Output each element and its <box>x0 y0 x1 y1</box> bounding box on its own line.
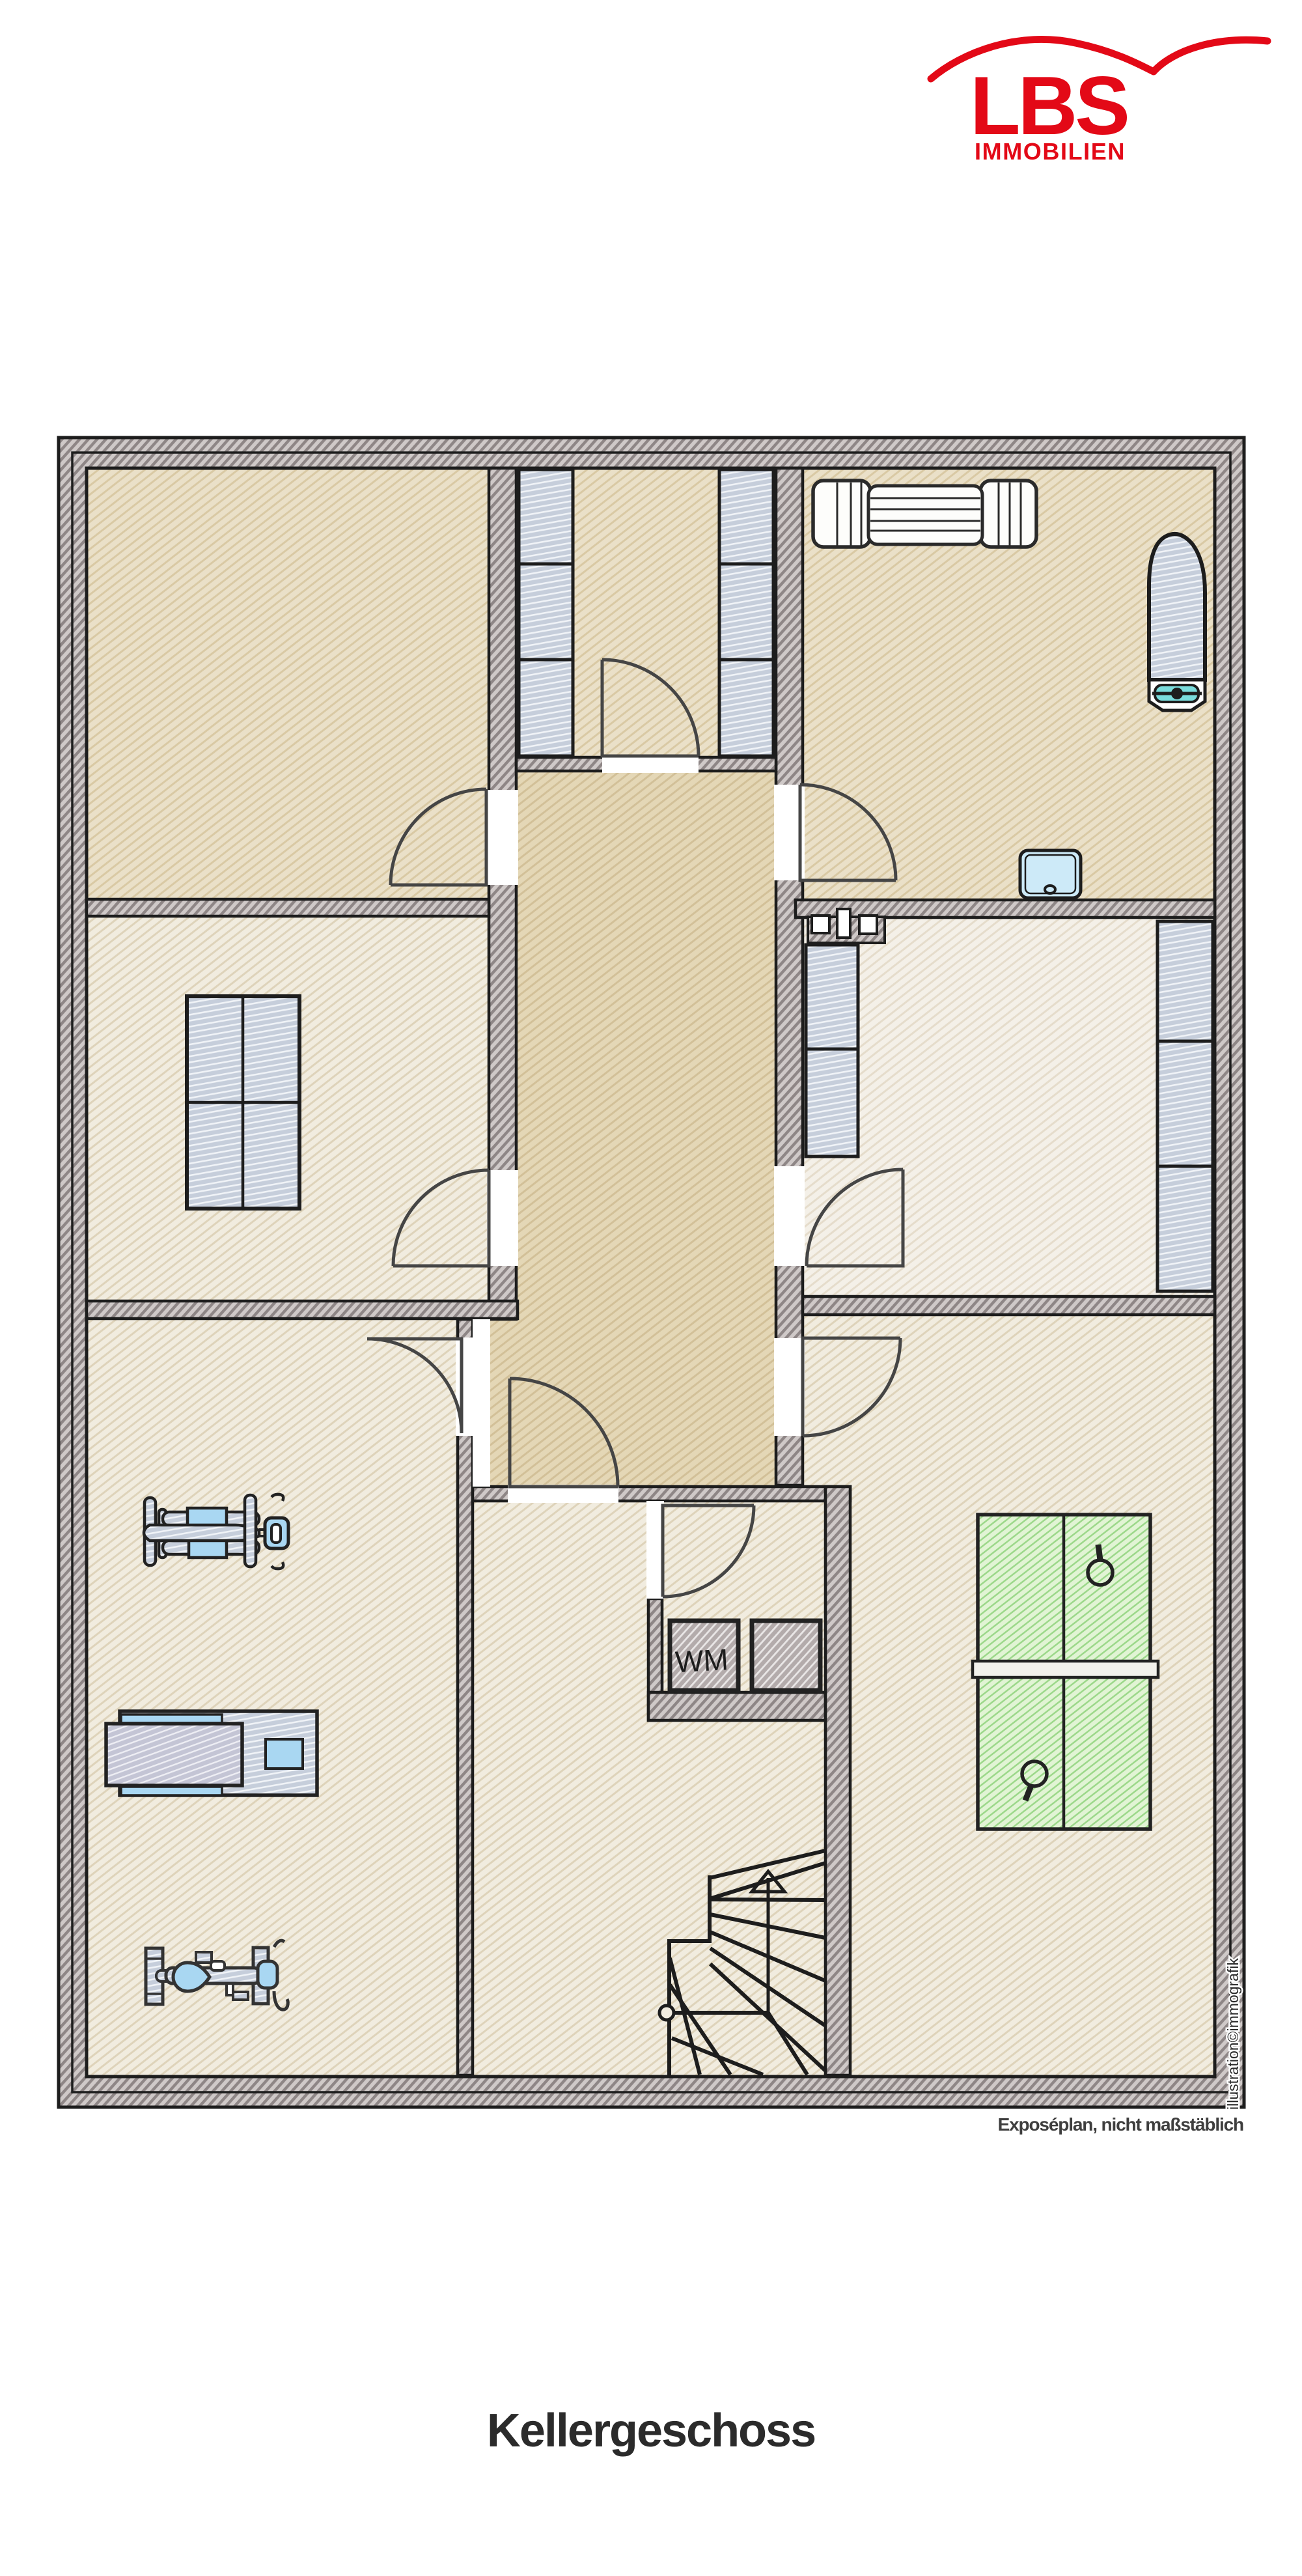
svg-text:Kellergeschoss: Kellergeschoss <box>487 2405 815 2457</box>
svg-text:illustration©immografik: illustration©immografik <box>1225 1958 1241 2110</box>
svg-text:WM: WM <box>674 1642 729 1679</box>
svg-text:Exposéplan, nicht maßstäblich: Exposéplan, nicht maßstäblich <box>998 2114 1243 2135</box>
svg-text:IMMOBILIEN: IMMOBILIEN <box>975 138 1126 165</box>
